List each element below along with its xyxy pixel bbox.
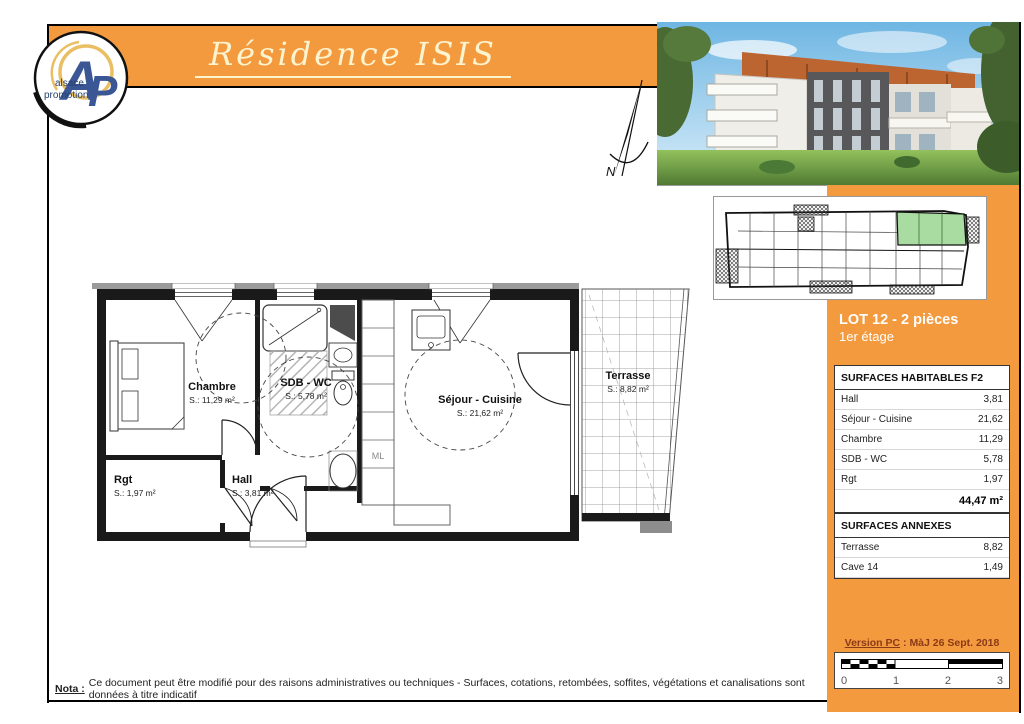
version-label: Version PC (845, 637, 900, 649)
key-plan-drawing (714, 197, 984, 297)
north-arrow: N (598, 76, 662, 184)
scale-tick: 2 (945, 675, 951, 687)
entrance-gap (250, 532, 306, 541)
row-value: 5,78 (984, 454, 1003, 465)
surfaces-annexes-header: SURFACES ANNEXES (835, 513, 1009, 538)
scale-tick: 3 (997, 675, 1003, 687)
title-banner: Résidence ISIS (49, 24, 657, 88)
grass (657, 150, 1019, 185)
room-label-hall: Hall (232, 474, 252, 486)
washing-machine-label: ML (372, 451, 385, 461)
logo-text-alsace: alsace (55, 78, 84, 89)
surfaces-table: SURFACES HABITABLES F2 Hall 3,81 Séjour … (834, 365, 1010, 579)
north-label: N (606, 164, 616, 179)
table-row: Chambre 11,29 (835, 430, 1009, 450)
scale-tick: 0 (841, 675, 847, 687)
row-value: 1,97 (984, 474, 1003, 485)
logo-text-promotion: promotion (44, 90, 88, 101)
row-label: Séjour - Cuisine (841, 414, 912, 425)
nota-label: Nota : (55, 683, 85, 695)
building-key-plan (713, 196, 987, 300)
row-value: 21,62 (978, 414, 1003, 425)
terrace-area (582, 289, 689, 533)
room-label-sdb: SDB - WC (280, 377, 331, 389)
room-label-sejour: Séjour - Cuisine (438, 394, 522, 406)
version-scale-block: Version PC : MàJ 26 Sept. 2018 0 1 (834, 637, 1010, 689)
surfaces-habitables-header: SURFACES HABITABLES F2 (835, 366, 1009, 390)
scale-bar-box: 0 1 2 3 (834, 652, 1010, 689)
row-value: 8,82 (984, 542, 1003, 553)
table-row: SDB - WC 5,78 (835, 450, 1009, 470)
version-date: : MàJ 26 Sept. 2018 (900, 637, 999, 649)
row-value: 3,81 (984, 394, 1003, 405)
building-photo (657, 22, 1019, 186)
table-row: Rgt 1,97 (835, 470, 1009, 490)
room-label-chambre: Chambre (188, 381, 236, 393)
row-label: Rgt (841, 474, 857, 485)
surfaces-total: 44,47 m² (835, 490, 1009, 513)
row-label: Hall (841, 394, 858, 405)
lot-floor: 1er étage (839, 329, 958, 345)
bay-window (569, 351, 580, 495)
highlighted-lot-unit (897, 212, 966, 245)
table-row: Terrasse 8,82 (835, 538, 1009, 558)
row-label: Chambre (841, 434, 882, 445)
room-area-terrasse: S.: 8,82 m² (607, 384, 649, 394)
row-value: 11,29 (979, 434, 1003, 445)
lot-title: LOT 12 - 2 pièces (839, 311, 958, 329)
table-row: Séjour - Cuisine 21,62 (835, 410, 1009, 430)
turning-circles (196, 313, 515, 457)
entrance-step (250, 541, 306, 547)
room-area-sejour: S.: 21,62 m² (457, 408, 503, 418)
scale-tick: 1 (893, 675, 899, 687)
nota-text: Ce document peut être modifié pour des r… (89, 677, 827, 701)
room-area-rgt: S.: 1,97 m² (114, 488, 156, 498)
table-row: Cave 14 1,49 (835, 558, 1009, 578)
alsace-promotion-logo: A P alsace promotion (26, 26, 134, 138)
scale-numbers: 0 1 2 3 (841, 675, 1003, 687)
building-render (657, 22, 1019, 185)
plan-sheet: Résidence ISIS A P alsace promotion (0, 0, 1024, 724)
row-label: Cave 14 (841, 562, 878, 573)
bed (110, 341, 184, 431)
room-label-rgt: Rgt (114, 474, 133, 486)
scale-bar (841, 659, 1003, 669)
table-row: Hall 3,81 (835, 390, 1009, 410)
kitchen-sink (412, 310, 450, 350)
room-area-sdb: S.: 5,78 m² (285, 391, 327, 401)
residence-title: Résidence ISIS (195, 35, 511, 78)
room-label-terrasse: Terrasse (605, 370, 650, 382)
version-text: Version PC : MàJ 26 Sept. 2018 (834, 637, 1010, 649)
lot-header: LOT 12 - 2 pièces 1er étage (839, 311, 958, 345)
row-label: SDB - WC (841, 454, 887, 465)
logo-letter-p: P (88, 67, 118, 116)
floor-plan: ML (92, 283, 692, 549)
footer-note: Nota : Ce document peut être modifié pou… (49, 678, 827, 702)
row-label: Terrasse (841, 542, 879, 553)
row-value: 1,49 (984, 562, 1003, 573)
page-border-right (1019, 22, 1021, 713)
room-area-chambre: S.: 11,29 m² (189, 395, 235, 405)
room-area-hall: S.: 3,81 m² (232, 488, 274, 498)
logo-graphic: A P alsace promotion (26, 26, 134, 138)
